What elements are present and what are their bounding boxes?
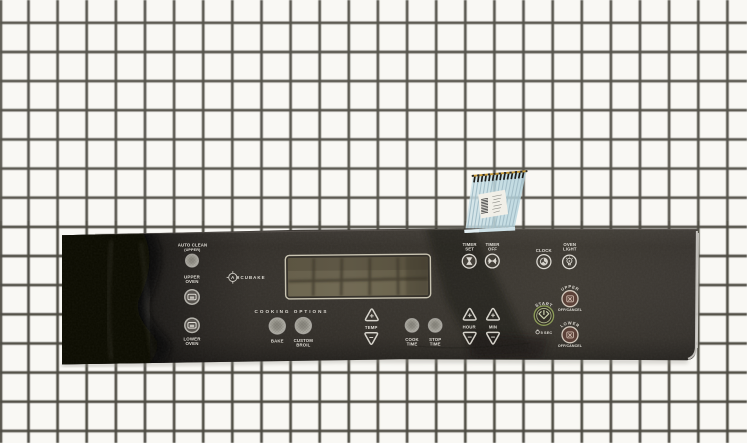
svg-text:TIME: TIME [430, 341, 441, 346]
svg-text:AUTO CLEAN: AUTO CLEAN [178, 242, 208, 247]
svg-text:OFF/CANCEL: OFF/CANCEL [558, 308, 583, 312]
svg-text:LIGHT: LIGHT [563, 246, 577, 251]
svg-text:BAKE: BAKE [271, 339, 284, 344]
svg-text:OFF/CANCEL: OFF/CANCEL [558, 344, 583, 348]
svg-text:OFF: OFF [488, 246, 497, 251]
svg-text:SET: SET [465, 246, 474, 251]
svg-text:TIME: TIME [407, 341, 418, 346]
svg-text:A: A [231, 275, 235, 280]
svg-text:(UPPER): (UPPER) [184, 248, 201, 252]
svg-text:CCUBAKE: CCUBAKE [236, 275, 265, 280]
svg-text:BROIL: BROIL [296, 343, 310, 348]
svg-text:CLOCK: CLOCK [536, 248, 553, 253]
svg-text:TEMP: TEMP [365, 325, 378, 330]
svg-text:HOUR: HOUR [463, 324, 477, 329]
svg-text:OVEN: OVEN [185, 341, 198, 346]
svg-text:COOKING OPTIONS: COOKING OPTIONS [255, 309, 329, 314]
svg-text:MIN: MIN [489, 324, 497, 329]
svg-text:5 SEC: 5 SEC [541, 331, 553, 335]
svg-text:OVEN: OVEN [185, 279, 198, 284]
